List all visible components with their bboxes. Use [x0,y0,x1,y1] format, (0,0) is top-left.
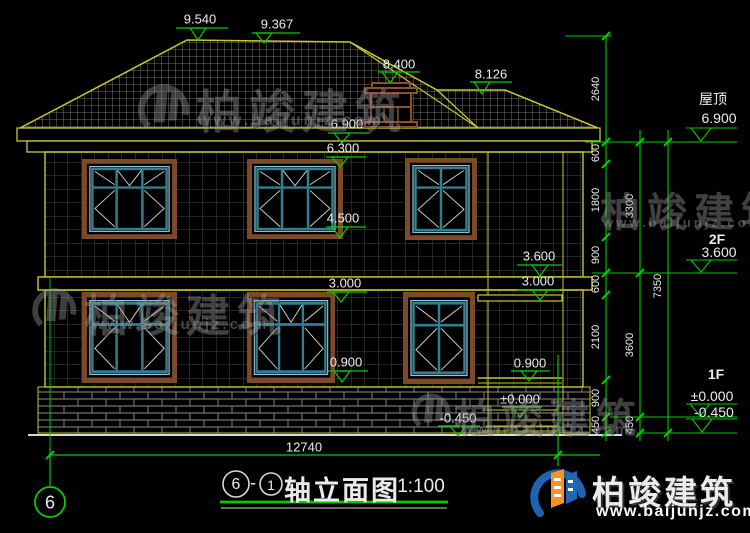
watermark-url: www.baijunjz.com [603,215,750,230]
elev-floor-2f: 3.600 [523,249,556,264]
elev-window-sill-2f: 4.500 [327,211,360,226]
window-2f-right [408,160,475,237]
level-2f-value: 3.600 [701,244,736,260]
level-roof-value: 6.900 [701,110,736,126]
elev-ceiling-1f-right: 3.000 [522,274,555,289]
dim-inner-600a: 600 [590,144,602,162]
dim-inner-2100: 2100 [590,325,602,349]
logo-url: www.baijunjz.com [596,503,750,521]
level-1f-value: ±0.000 [691,388,734,404]
title-axis-to: 1 [267,477,275,493]
elev-ridge-main: 9.540 [184,12,217,27]
watermark-url: www.baijunjz.com [462,421,631,437]
elev-window-head-2f: 6.300 [327,141,360,156]
title-separator: - [250,473,256,494]
marker-ridge-main [176,28,228,40]
dim-inner-600b: 600 [590,275,602,293]
marker-2f-right [686,260,737,272]
window-2f-left [84,161,174,236]
elev-window-sill-1f: 0.900 [330,355,363,370]
watermark-brand: 柏竣建筑 [196,76,408,142]
drawing-title: 轴立面图 [284,469,400,508]
window-1f-right [406,295,473,382]
elevation-drawing: 9.540 9.367 8.400 8.126 6.900 6.300 4.50… [0,0,750,533]
level-roof-label: 屋顶 [699,89,727,109]
dim-inner-900a: 900 [590,246,602,264]
elev-ceiling-1f-mid: 3.000 [329,276,362,291]
title-axis-from: 6 [232,476,241,494]
drawing-scale: 1:100 [397,476,445,498]
dim-outer-7350: 7350 [652,274,664,298]
elev-lower-ridge: 8.126 [475,67,508,82]
marker-ground-right [686,419,737,432]
watermark-brand: 柏竣建筑 [84,280,288,344]
watermark-url: www.baijunjz.com [198,112,384,130]
logo-icon [534,469,582,513]
dim-mid-3600: 3600 [624,333,636,357]
axis-bubble-label: 6 [45,493,55,514]
elev-porch-sill: 0.900 [514,356,547,371]
marker-roof-right [686,128,737,141]
elev-dormer-top: 8.400 [383,57,416,72]
dim-overall-width: 12740 [286,440,322,455]
watermark-url: www.baijunjz.com [92,316,269,333]
level-ground-value: -0.450 [694,404,734,420]
elev-ridge-second: 9.367 [261,17,294,32]
level-1f-label: 1F [708,366,724,382]
dim-inner-2640: 2640 [590,77,602,101]
